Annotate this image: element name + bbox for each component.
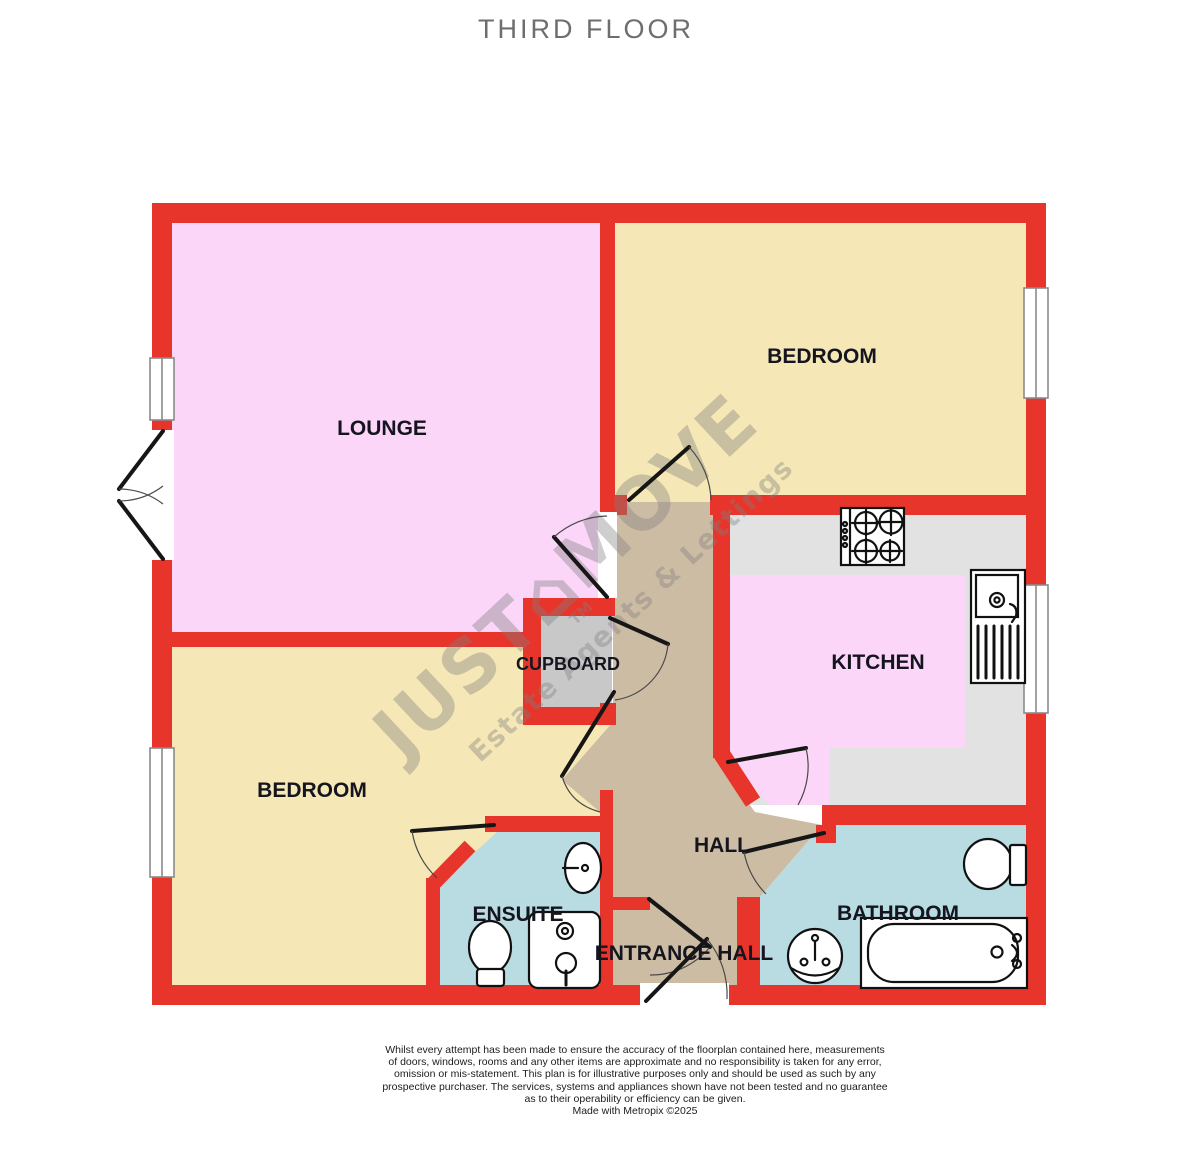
entrance-hall-label: ENTRANCE HALL bbox=[595, 942, 774, 965]
kitchen-sink-icon bbox=[971, 570, 1025, 683]
ensuite-label: ENSUITE bbox=[472, 903, 563, 926]
disclaimer-line: omission or mis-statement. This plan is … bbox=[0, 1068, 1200, 1080]
wall-bathroom-top bbox=[822, 805, 1046, 825]
wall-outer-left bbox=[152, 203, 172, 1005]
bedroom-bottom-label: BEDROOM bbox=[257, 779, 367, 802]
disclaimer: Whilst every attempt has been made to en… bbox=[0, 1044, 1200, 1117]
bath-icon bbox=[861, 918, 1027, 988]
disclaimer-line: prospective purchaser. The services, sys… bbox=[0, 1081, 1200, 1093]
wall-entrance-top-stub bbox=[613, 897, 650, 910]
wall-lounge-right bbox=[600, 223, 615, 512]
wall-ensuite-right bbox=[600, 816, 613, 1005]
kitchen-label: KITCHEN bbox=[831, 651, 924, 674]
disclaimer-line: of doors, windows, rooms and any other i… bbox=[0, 1056, 1200, 1068]
lounge-window bbox=[150, 358, 174, 420]
bedroom-bottom-window bbox=[150, 748, 174, 877]
bedroom-top-label: BEDROOM bbox=[767, 345, 877, 368]
wall-outer-top bbox=[152, 203, 1046, 223]
wall-hall-door-stub-lower bbox=[600, 790, 613, 820]
disclaimer-line: Whilst every attempt has been made to en… bbox=[0, 1044, 1200, 1056]
wall-ensuite-left bbox=[426, 878, 440, 985]
bedroom-top-window bbox=[1024, 288, 1048, 398]
lounge-label: LOUNGE bbox=[337, 417, 427, 440]
wall-ensuite-top bbox=[485, 816, 613, 832]
bathroom-toilet-icon bbox=[964, 839, 1026, 889]
bathroom-label: BATHROOM bbox=[837, 902, 959, 925]
cupboard-label: CUPBOARD bbox=[516, 654, 620, 674]
stove-icon bbox=[841, 508, 904, 565]
bathroom-sink-icon bbox=[788, 929, 842, 983]
kitchen-window bbox=[1024, 585, 1048, 713]
disclaimer-line: as to their operability or efficiency ca… bbox=[0, 1093, 1200, 1105]
floorplan-drawing: JUST⌂MOVE TM Estate Agents & Lettings bbox=[0, 0, 1200, 1159]
french-door-gap bbox=[150, 430, 174, 560]
floorplan-page: THIRD FLOOR bbox=[0, 0, 1200, 1159]
disclaimer-credit: Made with Metropix ©2025 bbox=[0, 1105, 1200, 1117]
hall-label: HALL bbox=[694, 834, 750, 857]
